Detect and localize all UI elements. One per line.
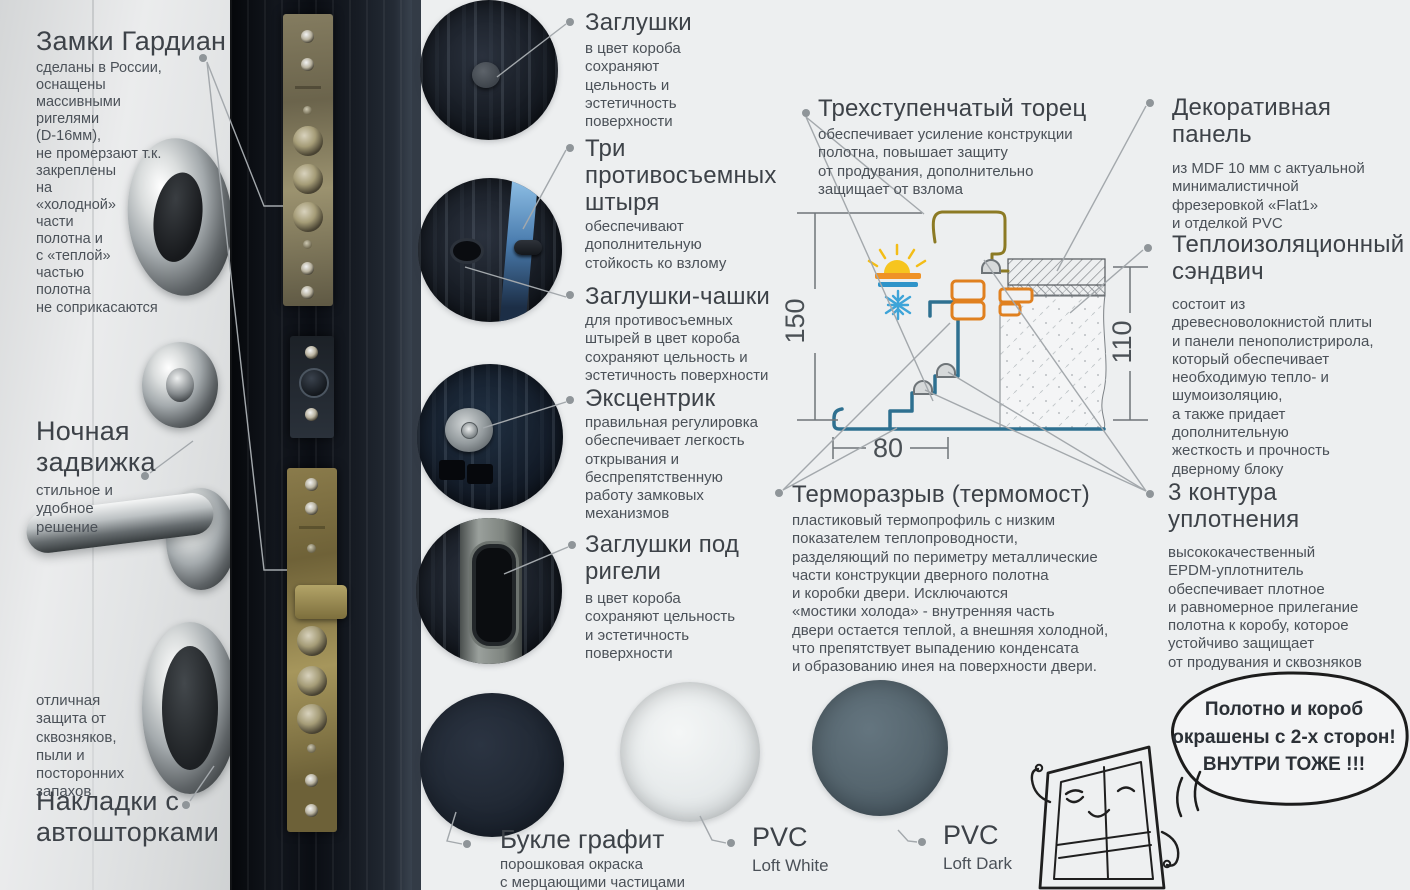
lock-bolt-icon bbox=[305, 774, 318, 787]
plug-icon bbox=[472, 62, 500, 88]
infographic-page: Замки Гардиан сделаны в России, оснащены… bbox=[0, 0, 1410, 890]
brand-stamp bbox=[299, 526, 325, 529]
callout-title-pins: Три противосъемных штыря bbox=[585, 136, 805, 217]
lock-bolt-icon bbox=[301, 262, 314, 275]
middle-lock-plate bbox=[290, 336, 334, 438]
callout-photo-rigel-slot bbox=[416, 518, 562, 664]
edge-title: Трехступенчатый торец bbox=[818, 96, 1108, 123]
lock-bolt-icon bbox=[301, 286, 314, 299]
callout-photo-pin bbox=[418, 178, 562, 322]
callout-body-cups: для противосъемных штырей в цвет короба … bbox=[585, 312, 805, 385]
seals-body: высококачественный EPDM-уплотнитель обес… bbox=[1168, 544, 1408, 672]
lock-rigel-icon bbox=[293, 126, 323, 156]
seals-title: 3 контура уплотнения bbox=[1168, 480, 1398, 534]
lock-bolt-icon bbox=[305, 478, 318, 491]
bubble-line-2: окрашены с 2-х сторон! bbox=[1168, 724, 1400, 752]
lock-rigel-icon bbox=[297, 626, 327, 656]
brand-stamp bbox=[295, 86, 321, 89]
eccentric-disc-icon bbox=[445, 408, 493, 452]
swatch-white-title: PVC bbox=[752, 822, 852, 853]
swatch-white-body: Loft White bbox=[752, 856, 892, 876]
night-latch-title: Ночная задвижка bbox=[36, 416, 236, 477]
mdf-panel-hatch bbox=[1008, 259, 1105, 285]
thermal-title: Терморазрыв (термомост) bbox=[792, 482, 1122, 509]
speech-bubble-text: Полотно и короб окрашены с 2-х сторон! В… bbox=[1168, 696, 1400, 779]
lock-rigel-icon bbox=[293, 202, 323, 232]
swatch-graphite-title: Букле графит bbox=[500, 824, 700, 855]
swatch-graphite-body: порошковая окраска с мерцающими частицам… bbox=[500, 856, 720, 890]
lock-rigel-icon bbox=[297, 666, 327, 696]
latch-bolt bbox=[295, 585, 347, 619]
swatch-graphite bbox=[420, 693, 564, 837]
lock-bolt-icon bbox=[301, 58, 314, 71]
callout-body-pins: обеспечивают дополнительную стойкость ко… bbox=[585, 218, 795, 273]
pin-hole-icon bbox=[450, 238, 484, 264]
locks-title: Замки Гардиан bbox=[36, 26, 236, 57]
lower-lock-plate bbox=[287, 468, 337, 832]
edge-body: обеспечивает усиление конструкции полотн… bbox=[818, 126, 1108, 199]
callout-photo-eccentric bbox=[417, 364, 563, 510]
cylinder-icon bbox=[299, 368, 329, 398]
sandwich-title: Теплоизоляционный сэндвич bbox=[1172, 232, 1410, 286]
sun-snowflake-icon bbox=[869, 245, 925, 319]
callout-title-rigel-plugs: Заглушки под ригели bbox=[585, 532, 805, 586]
callout-title-plugs: Заглушки bbox=[585, 10, 795, 37]
lock-bolt-icon bbox=[307, 744, 316, 753]
night-latch-body: стильное и удобное решение bbox=[36, 482, 236, 537]
swatch-dark-body: Loft Dark bbox=[943, 854, 1083, 874]
night-latch-lever bbox=[166, 368, 194, 402]
swatch-loft-dark bbox=[812, 680, 948, 816]
sandwich-body: состоит из древесноволокнистой плиты и п… bbox=[1172, 296, 1410, 479]
callout-title-cups: Заглушки-чашки bbox=[585, 284, 815, 311]
panel-body: из MDF 10 мм с актуальной минималистично… bbox=[1172, 160, 1402, 233]
callout-body-rigel-plugs: в цвет короба сохраняют цельность и эсте… bbox=[585, 590, 795, 663]
lock-rigel-icon bbox=[293, 164, 323, 194]
covers-title: Накладки с автошторками bbox=[36, 786, 246, 847]
rigel-slot-icon bbox=[472, 544, 516, 646]
thermal-body: пластиковый термопрофиль с низким показа… bbox=[792, 512, 1162, 677]
lock-bolt-icon bbox=[303, 240, 312, 249]
callout-photo-plug bbox=[420, 0, 558, 140]
lock-bolt-icon bbox=[307, 544, 316, 553]
lock-bolt-icon bbox=[305, 804, 318, 817]
dim-depth-label: 110 bbox=[1107, 320, 1137, 363]
callout-title-eccentric: Эксцентрик bbox=[585, 386, 805, 413]
lock-bolt-icon bbox=[305, 346, 318, 359]
bubble-line-3: ВНУТРИ ТОЖЕ !!! bbox=[1168, 751, 1400, 779]
door-cross-section-diagram: 150 110 80 bbox=[780, 185, 1160, 485]
lock-rigel-icon bbox=[297, 704, 327, 734]
locks-body: сделаны в России, оснащены массивными ри… bbox=[36, 60, 236, 317]
upper-lock-plate bbox=[283, 14, 333, 306]
eccentric-screw-icon bbox=[461, 422, 478, 439]
lock-bolt-icon bbox=[301, 30, 314, 43]
swatch-loft-white bbox=[620, 682, 760, 822]
lock-bolt-icon bbox=[305, 408, 318, 421]
bubble-line-1: Полотно и короб bbox=[1168, 696, 1400, 724]
lock-bolt-icon bbox=[305, 502, 318, 515]
callout-body-eccentric: правильная регулировка обеспечивает легк… bbox=[585, 414, 805, 524]
swatch-dark-title: PVC bbox=[943, 820, 1043, 851]
lock-slot-icon bbox=[467, 464, 493, 484]
lock-slot-icon bbox=[439, 460, 465, 480]
panel-title: Декоративная панель bbox=[1172, 95, 1402, 149]
anti-removal-pin-icon bbox=[514, 240, 542, 255]
lock-bolt-icon bbox=[303, 106, 312, 115]
dim-width-label: 80 bbox=[873, 433, 903, 463]
callout-body-plugs: в цвет короба сохраняют цельность и эсте… bbox=[585, 40, 795, 131]
